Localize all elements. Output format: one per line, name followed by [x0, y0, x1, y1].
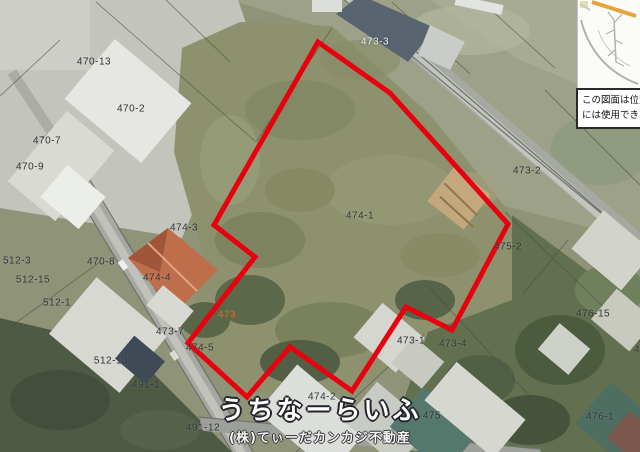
disclaimer-line-1: この図面は位置: [582, 93, 640, 108]
parcel-label: 474-1: [346, 211, 374, 222]
parcel-label: 473-7: [156, 327, 184, 338]
parcel-label: 512-15: [16, 275, 50, 286]
parcel-label: 474-3: [170, 223, 198, 234]
parcel-label: 512-13: [94, 356, 128, 367]
parcel-label: 491-12: [186, 423, 220, 434]
parcel-label: 473-2: [513, 166, 541, 177]
parcel-label: 474-4: [143, 273, 171, 284]
parcel-label: 473: [218, 310, 236, 321]
parcel-label: 470-9: [16, 162, 44, 173]
parcel-label: 470-2: [117, 104, 145, 115]
parcel-label: 491-1: [132, 380, 160, 391]
parcel-label: 473-4: [439, 339, 467, 350]
inset-disclaimer: この図面は位置 には使用できま: [576, 88, 640, 129]
location-inset-map: [577, 0, 640, 90]
parcel-label: 470-7: [33, 136, 61, 147]
inset-map-drawing: [578, 0, 640, 89]
disclaimer-line-2: には使用できま: [582, 108, 640, 123]
parcel-label: 475: [423, 411, 441, 422]
parcel-label: 473-3: [361, 37, 389, 48]
parcel-label: 476-1: [586, 412, 614, 423]
parcel-label: 474-2: [308, 392, 336, 403]
parcel-label: 476-15: [576, 309, 610, 320]
property-aerial-map: 473-3470-13470-2470-7470-9473-2474-1474-…: [0, 0, 640, 452]
parcel-label: 473-1: [397, 336, 425, 347]
parcel-label: 4: [634, 345, 640, 356]
parcel-label: 474-5: [186, 343, 214, 354]
parcel-label: 470-8: [87, 257, 115, 268]
parcel-label: 475-2: [494, 242, 522, 253]
parcel-label: 470-13: [77, 57, 111, 68]
parcel-label: 512-3: [3, 256, 31, 267]
parcel-labels-layer: 473-3470-13470-2470-7470-9473-2474-1474-…: [0, 0, 640, 452]
parcel-label: 512-1: [43, 298, 71, 309]
